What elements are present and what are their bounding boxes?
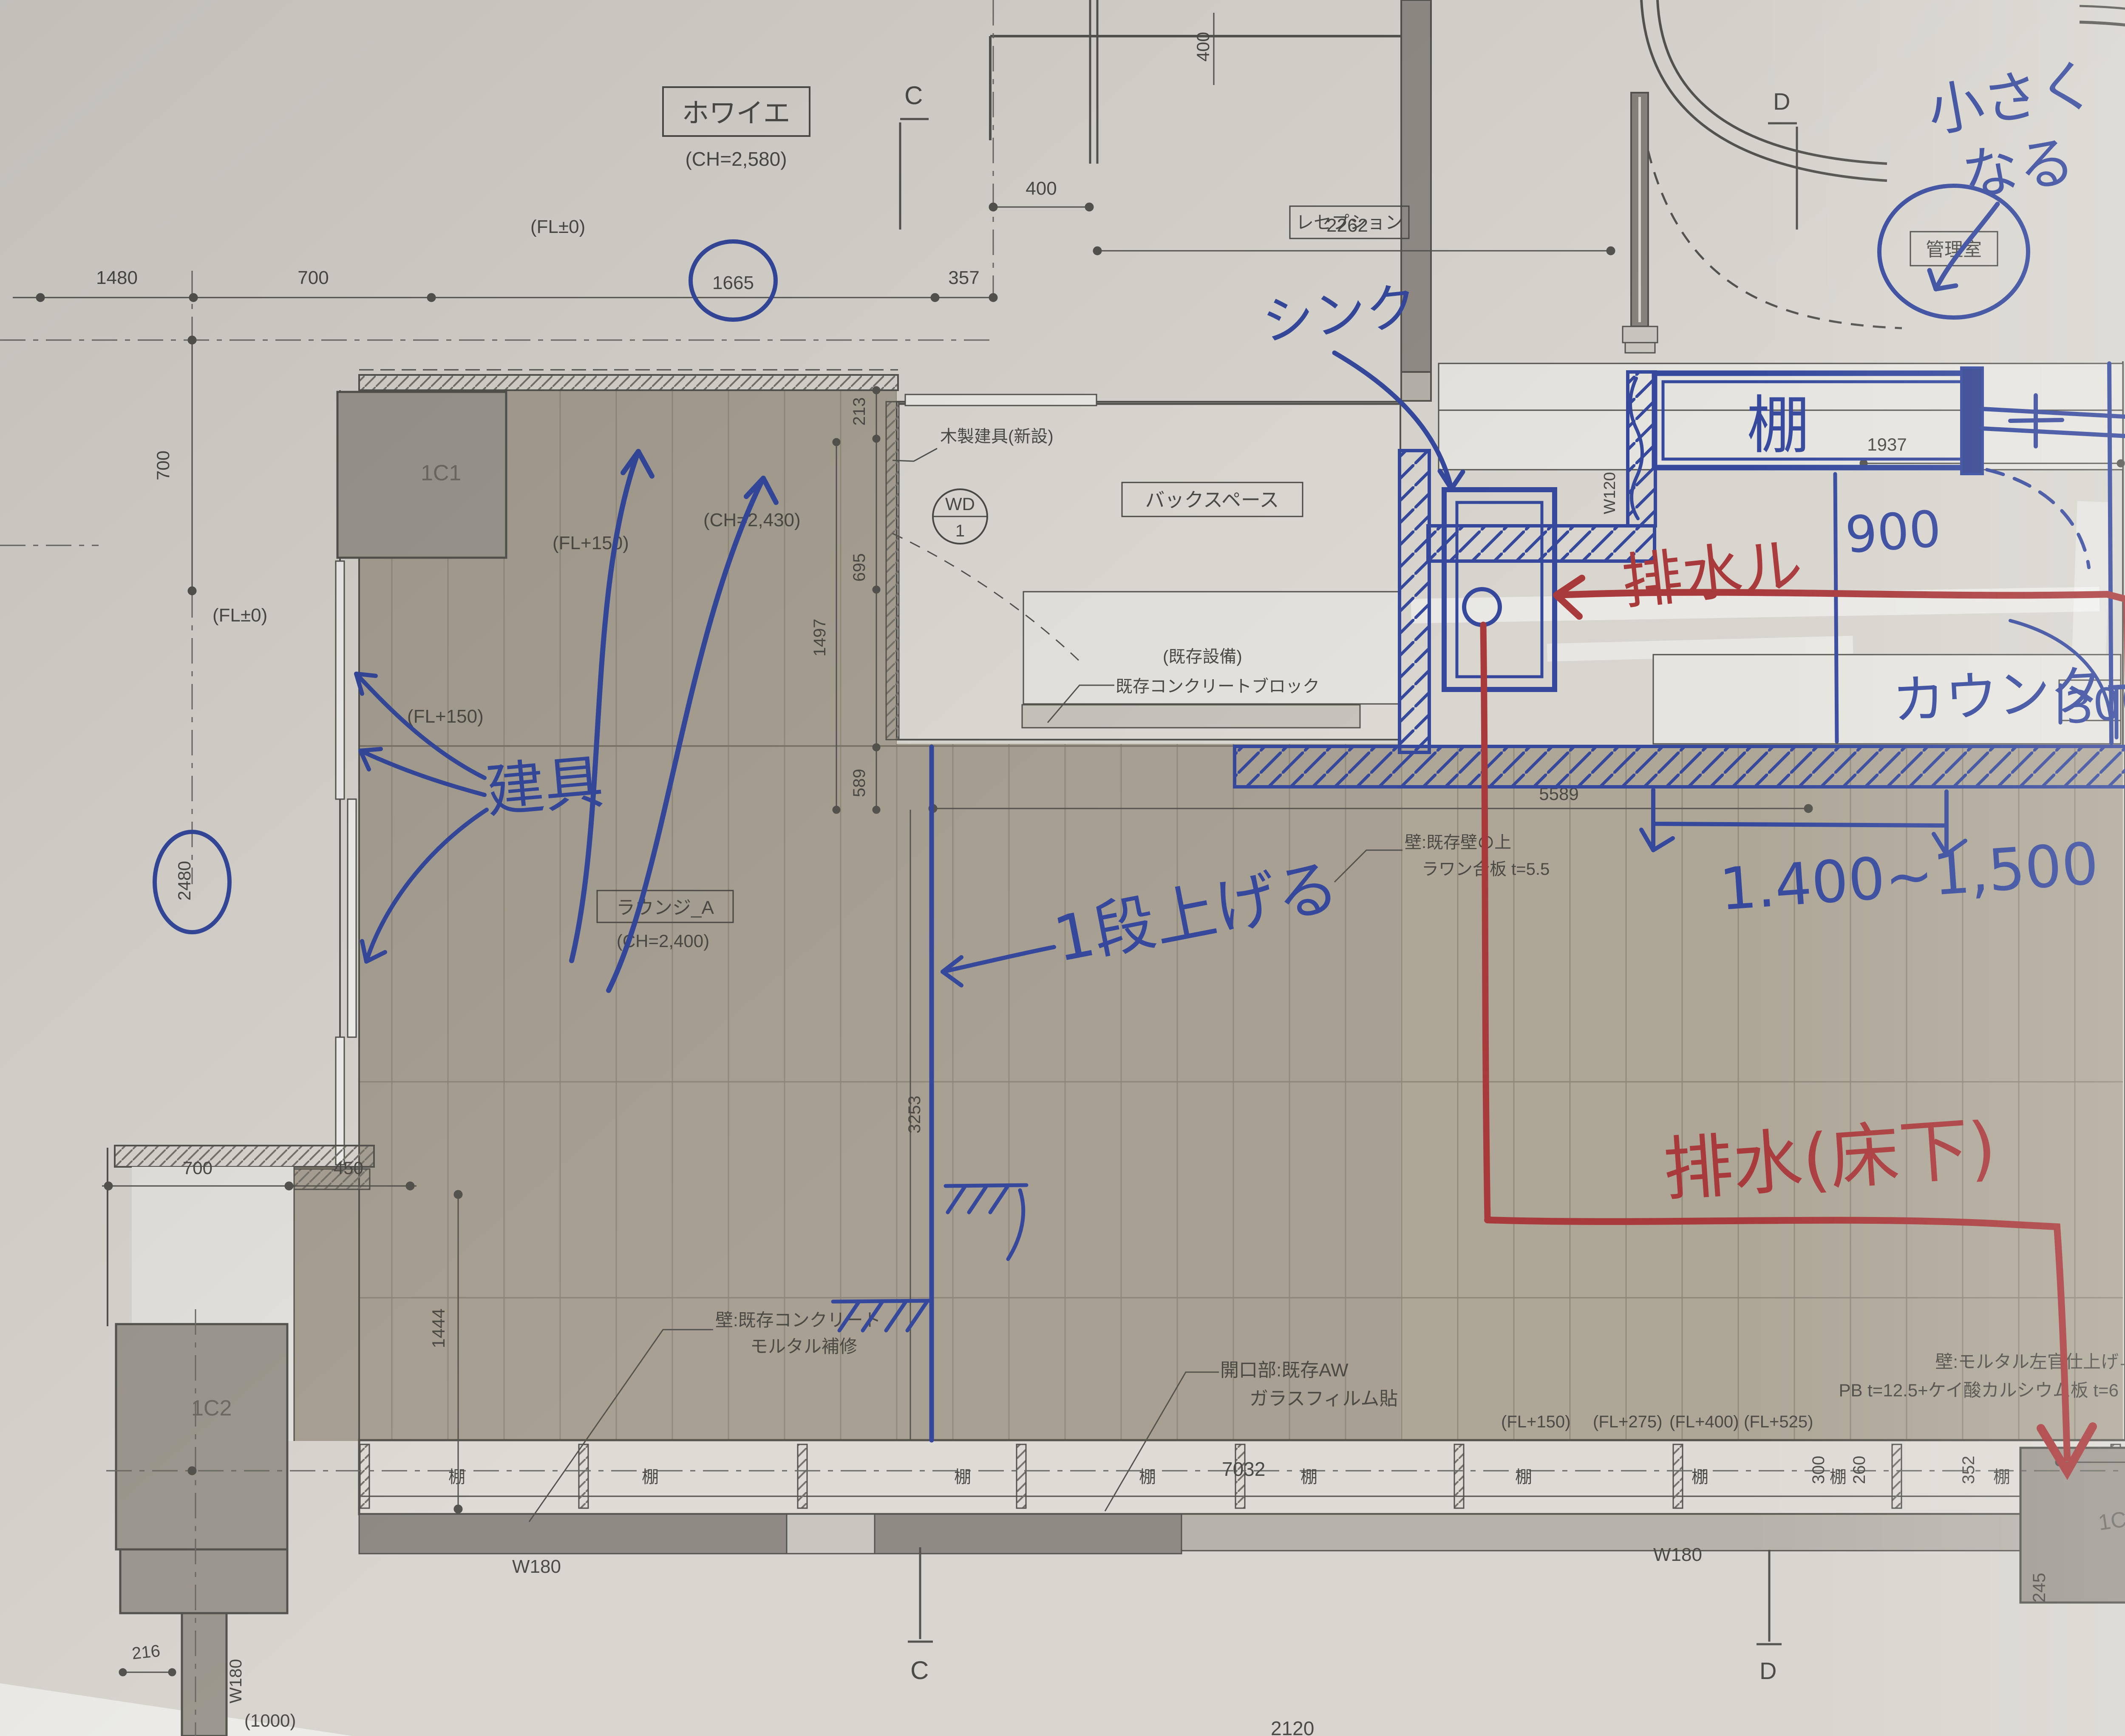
- floor-plan-photo: ホワイエ (CH=2,580) レセプション 管理室 バックスペース ラウンジ_…: [0, 0, 2125, 1736]
- photo-shading: [0, 0, 2125, 1736]
